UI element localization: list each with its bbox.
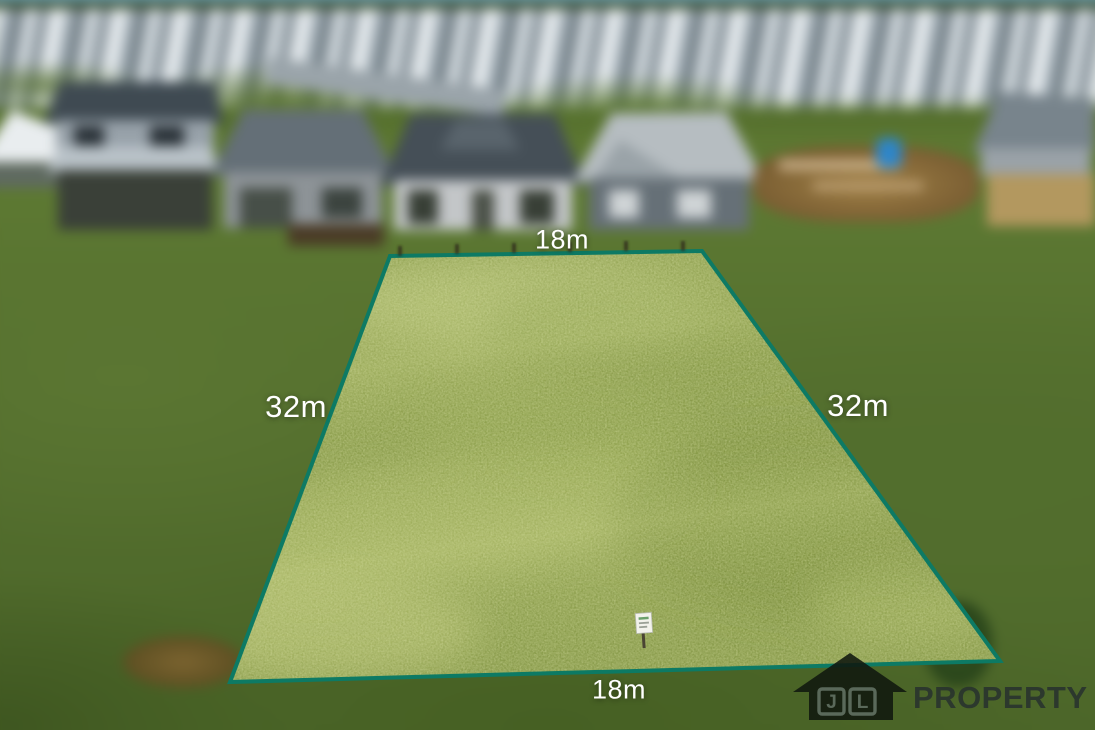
dimension-label-right: 32m [827, 388, 889, 424]
brand-name: PROPERTY [913, 680, 1088, 716]
dimension-label-top: 18m [535, 225, 589, 256]
house-logo-icon: J L [792, 648, 910, 722]
agency-watermark: J L PROPERTY [792, 648, 1088, 722]
dimension-label-left: 32m [265, 389, 327, 425]
logo-initial-j: J [826, 692, 837, 713]
listing-photo: 18m 32m 32m 18m J L PROPERTY [0, 0, 1095, 730]
land-plot-outline [0, 0, 1095, 730]
logo-initial-l: L [857, 692, 869, 713]
dimension-label-bottom: 18m [592, 675, 646, 706]
lot-grass-texture [230, 251, 1000, 682]
